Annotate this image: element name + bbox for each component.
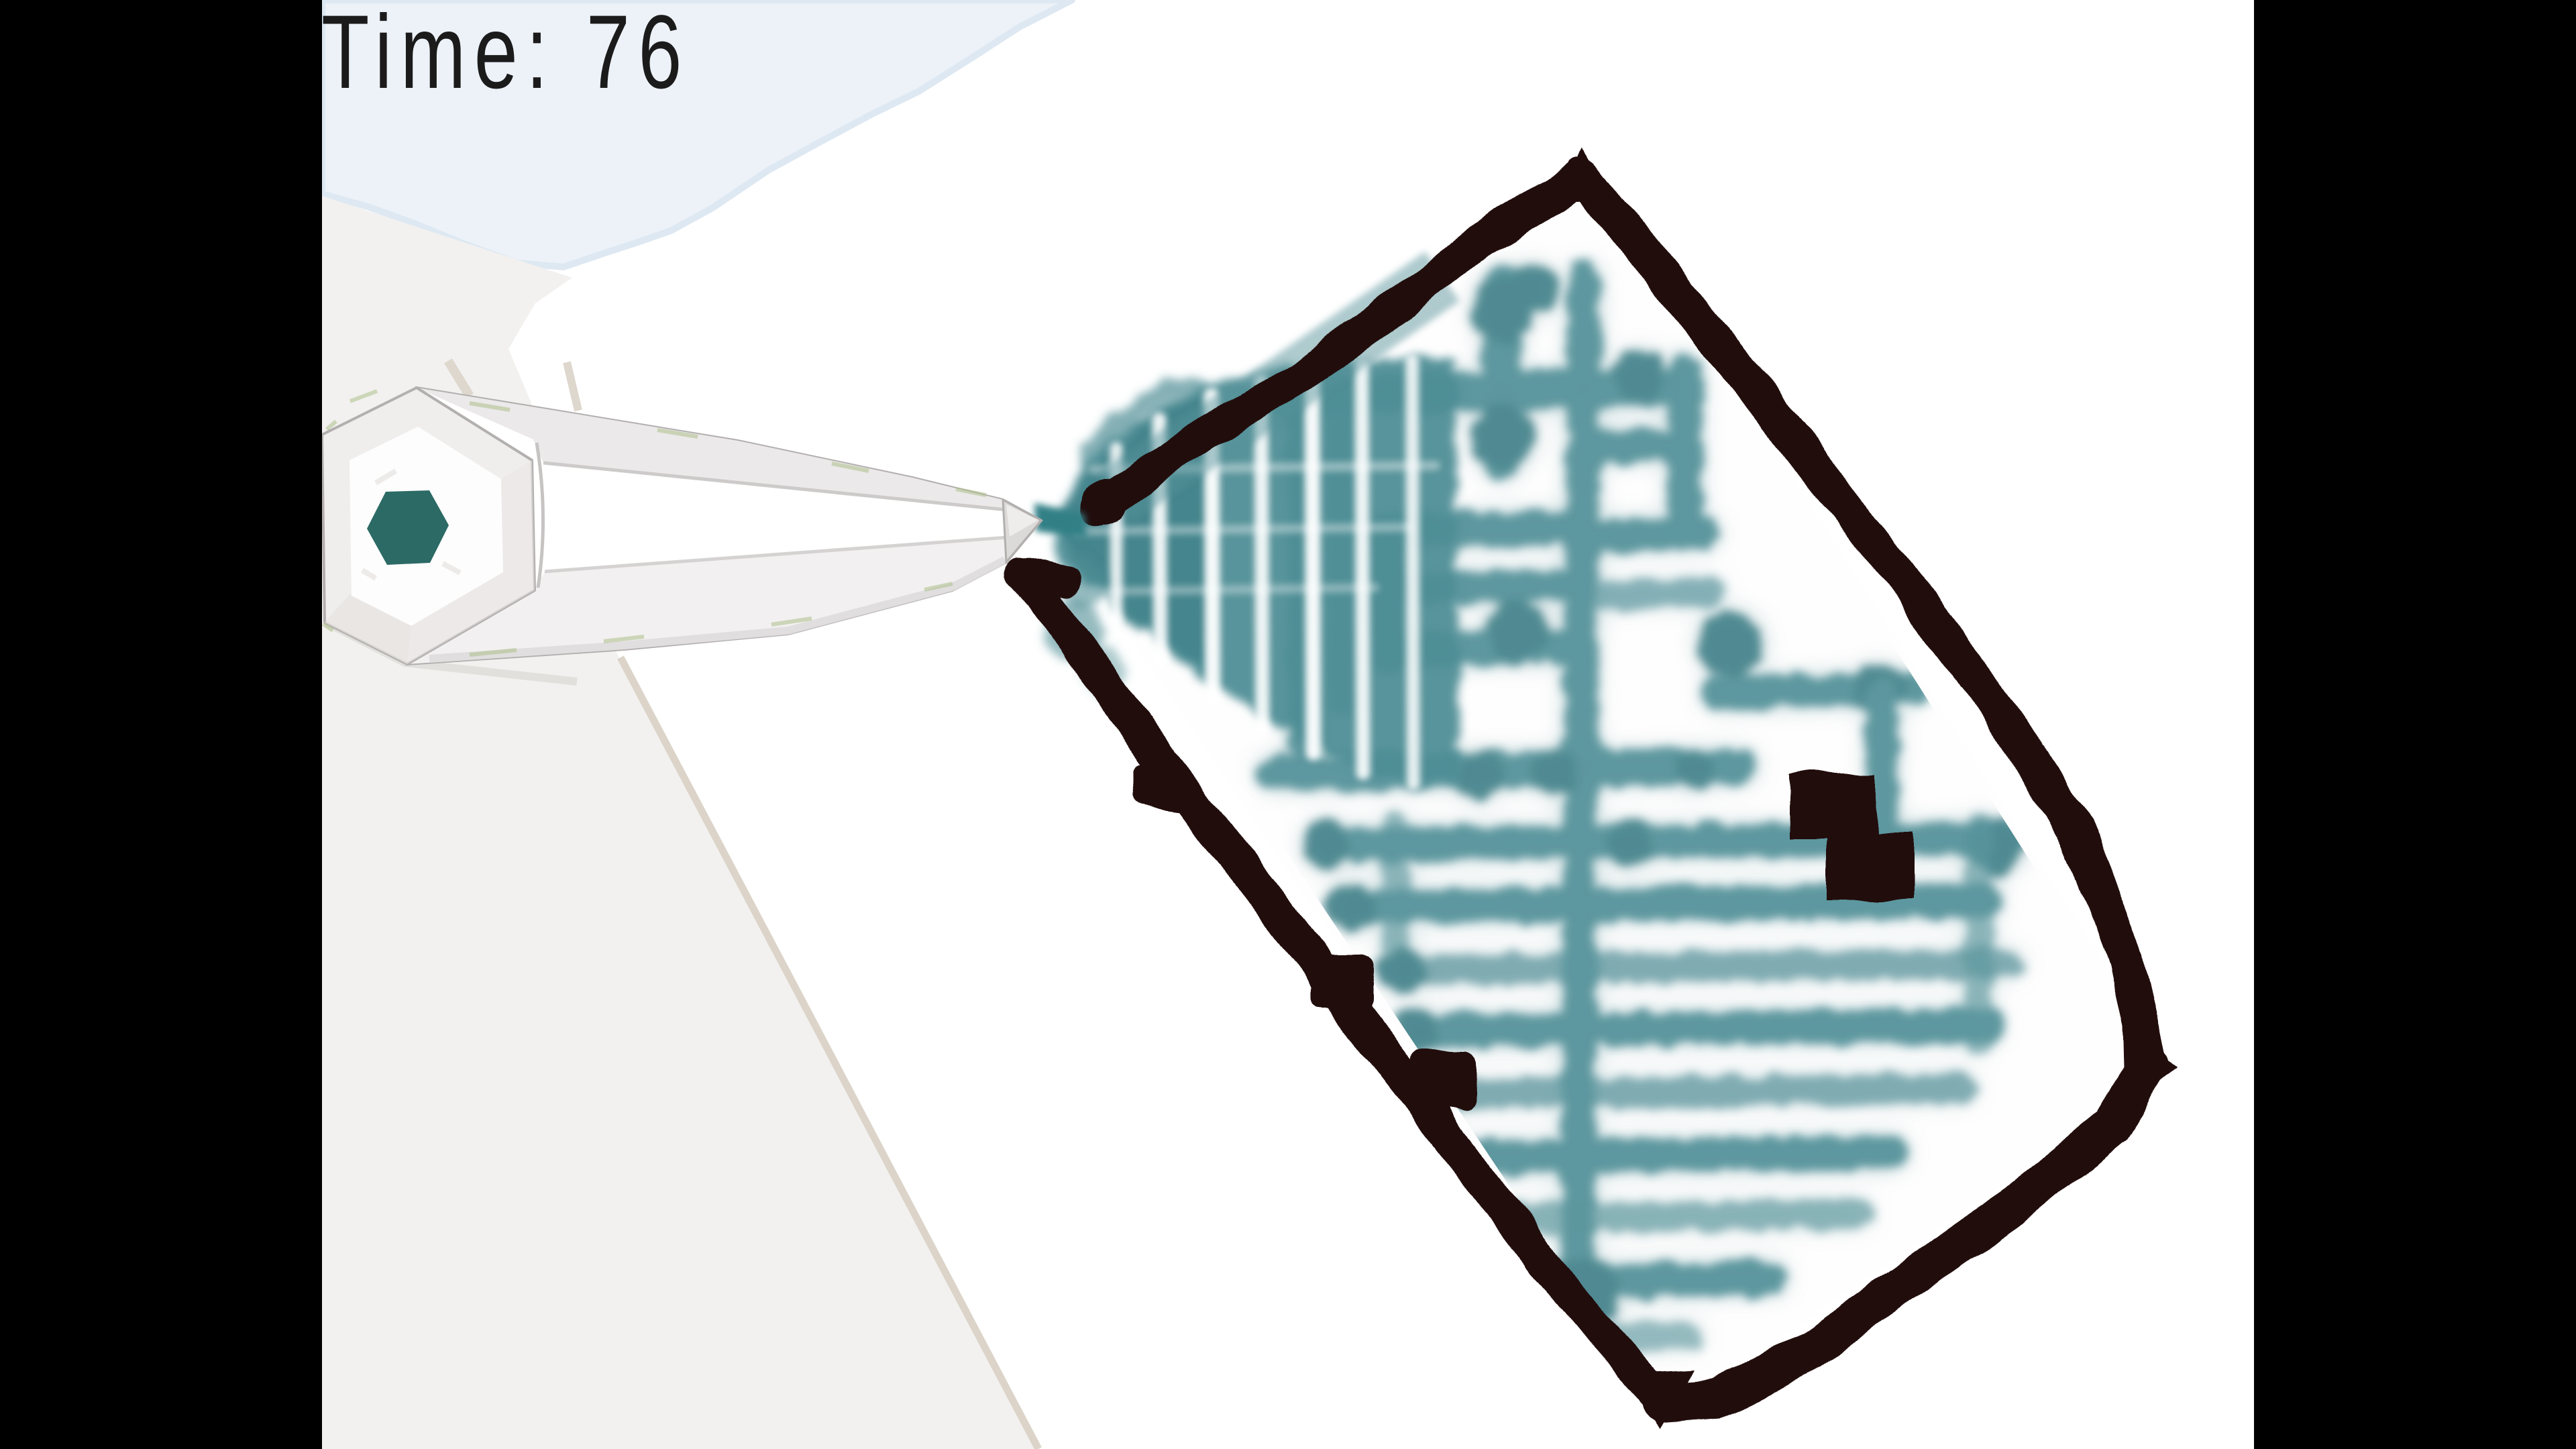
svg-text:Time: 76: Time: 76 (321, 0, 690, 111)
